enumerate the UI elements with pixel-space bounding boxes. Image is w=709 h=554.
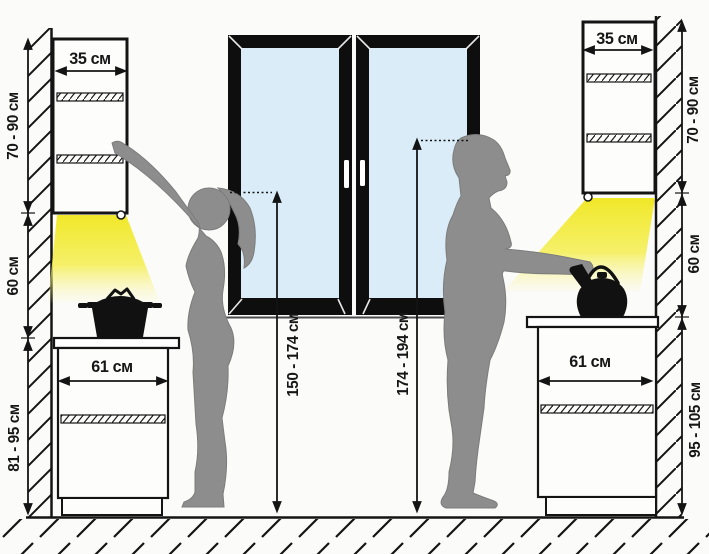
dim-label-right-upper-height: 70 - 90 см	[685, 76, 703, 143]
dim-label-left-upper-height: 70 - 90 см	[5, 92, 23, 159]
lamp-icon	[584, 193, 592, 201]
lamp-icon	[117, 211, 125, 219]
dim-label-right-base-height: 95 - 105 см	[687, 382, 705, 458]
dim-label-left-gap-height: 60 см	[5, 257, 23, 296]
dim-label-right-upper-width: 35 см	[596, 30, 637, 48]
drawer	[61, 415, 165, 423]
dim-label-left-base-width: 61 см	[91, 358, 132, 376]
dim-label-left-upper-width: 35 см	[69, 50, 110, 68]
kitchen-ergonomics-diagram: 35 см 70 - 90 см 60 см 61 см 81 - 95 см …	[0, 0, 709, 554]
right-wall-hatching	[656, 16, 682, 517]
dim-label-man-reach: 174 - 194 см	[395, 312, 413, 396]
floor-hatching	[0, 518, 709, 554]
shelf	[57, 155, 123, 163]
window-handle-right	[360, 160, 365, 186]
diagram-canvas	[0, 0, 709, 554]
shelf	[587, 134, 651, 142]
plinth	[62, 498, 162, 515]
right-base-cabinet	[527, 317, 658, 515]
countertop	[54, 338, 179, 348]
dim-label-right-gap-height: 60 см	[686, 235, 704, 274]
shelf	[587, 74, 651, 82]
dim-label-woman-reach: 150 - 174 см	[285, 313, 303, 397]
countertop	[527, 317, 658, 327]
plinth	[546, 497, 656, 515]
dim-label-left-base-height: 81 - 95 см	[6, 404, 24, 471]
under-cabinet-light-left	[48, 215, 160, 303]
dim-label-right-base-width: 61 см	[569, 353, 610, 371]
left-wall-hatching	[28, 28, 52, 517]
drawer	[541, 405, 653, 413]
window-handle-left	[344, 160, 349, 188]
shelf	[57, 93, 123, 101]
